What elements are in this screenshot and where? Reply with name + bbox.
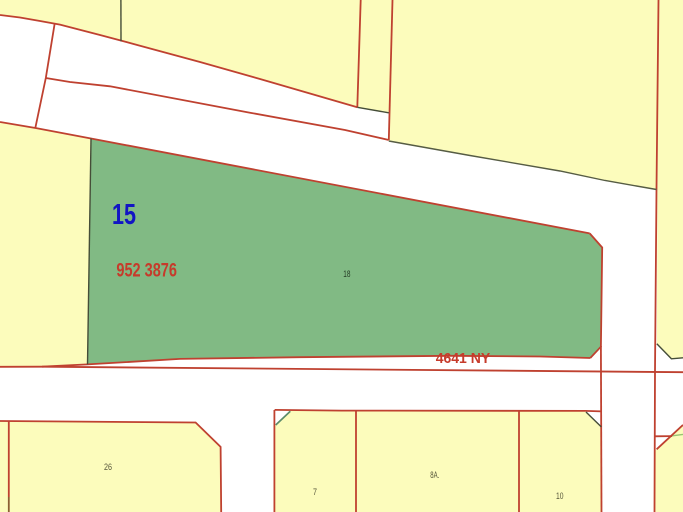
svg-text:10: 10 [556, 491, 564, 502]
svg-text:4641 NY: 4641 NY [436, 351, 491, 367]
svg-text:7: 7 [313, 487, 317, 497]
svg-text:15: 15 [112, 199, 136, 231]
svg-text:18: 18 [343, 269, 350, 280]
svg-text:8A.: 8A. [430, 470, 439, 480]
svg-text:26: 26 [104, 462, 112, 473]
svg-text:952 3876: 952 3876 [116, 260, 176, 281]
